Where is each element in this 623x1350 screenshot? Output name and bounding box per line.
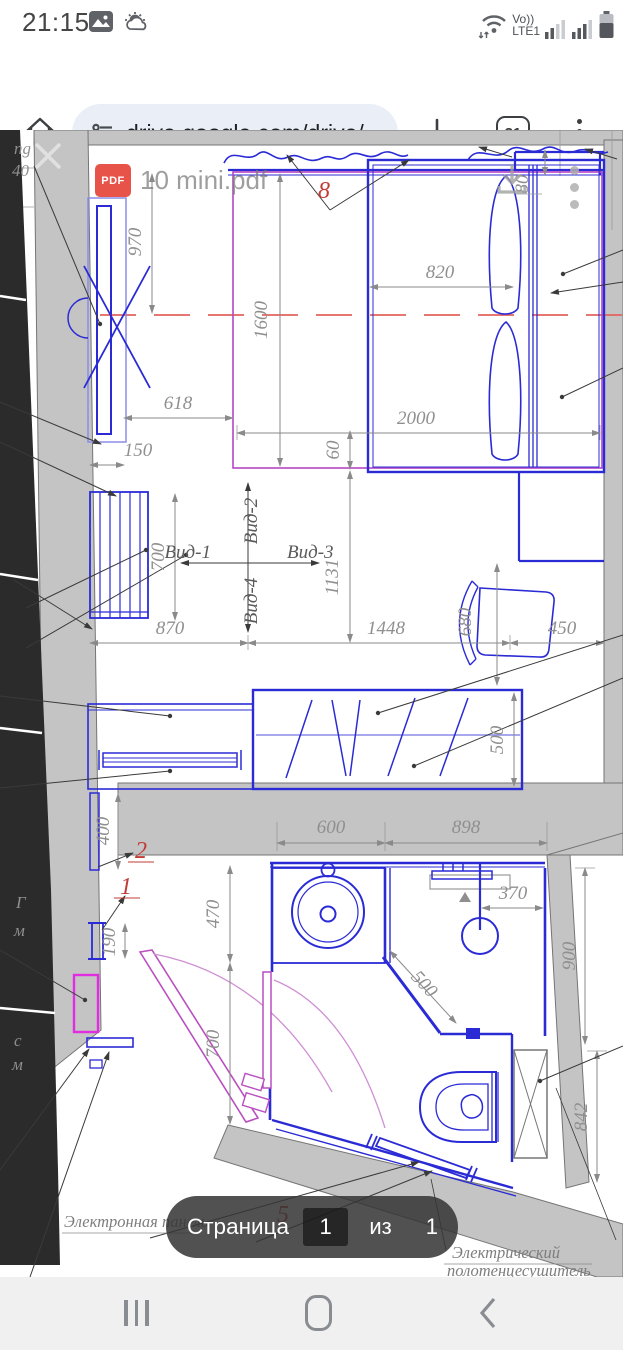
page-number-input[interactable]: 1 — [303, 1208, 348, 1246]
page-of-label: из — [369, 1214, 391, 1240]
phone-screen: 21:15 Vo)) — [0, 0, 623, 1350]
close-icon[interactable] — [30, 138, 66, 174]
svg-text:ng: ng — [14, 139, 31, 158]
dim-label: 870 — [156, 618, 185, 639]
page-indicator: Страница 1 из 1 — [166, 1196, 458, 1258]
svg-text:с: с — [14, 1031, 22, 1050]
wifi-icon — [478, 9, 508, 40]
dim-label: 680 — [455, 607, 476, 636]
dim-label: 400 — [93, 816, 114, 845]
callout: 2 — [135, 838, 147, 864]
dim-label: 600 — [317, 817, 346, 838]
floor-plan-drawing[interactable]: .dt{font:italic 19px "Liberation Serif",… — [0, 130, 623, 1277]
page-total: 1 — [426, 1214, 438, 1240]
dim-label: 820 — [426, 262, 455, 283]
svg-text:м: м — [13, 921, 25, 940]
callout: 1 — [120, 874, 132, 900]
annotation: Электрический — [452, 1243, 561, 1262]
dim-label: 470 — [203, 899, 224, 928]
svg-text:40: 40 — [12, 161, 30, 180]
dim-label: 60 — [323, 440, 344, 460]
status-icons: Vo)) LTE1 — [478, 4, 615, 40]
browser-toolbar: drive.google.com/drive/ 31 — [0, 45, 623, 130]
furniture — [68, 147, 608, 1068]
dim-label: 700 — [203, 1029, 224, 1058]
view-labels: Вид-1 Вид-3 Вид-2 Вид-4 — [164, 497, 333, 624]
view-label: Вид-3 — [287, 542, 334, 563]
dim-label: 1448 — [367, 618, 406, 639]
status-bar: 21:15 Vo)) — [0, 0, 623, 45]
view-label: Вид-2 — [241, 497, 262, 544]
clock: 21:15 — [22, 7, 90, 38]
page-indicator-label: Страница — [187, 1214, 289, 1240]
dim-label: 618 — [164, 393, 193, 414]
svg-text:Г: Г — [15, 893, 27, 912]
svg-text:м: м — [11, 1055, 23, 1074]
dim-label: 1131 — [322, 559, 343, 596]
dim-label: 2000 — [397, 408, 436, 429]
dim-label: 150 — [124, 440, 153, 461]
recents-button[interactable] — [124, 1300, 149, 1326]
battery-icon — [598, 10, 615, 40]
dim-label: 970 — [125, 227, 146, 256]
dim-label: 190 — [99, 927, 120, 956]
signal-bars-sim2-icon — [571, 12, 594, 40]
dim-label: 842 — [571, 1102, 592, 1131]
pdf-menu-icon[interactable] — [570, 166, 579, 209]
pdf-page[interactable]: .dt{font:italic 19px "Liberation Serif",… — [0, 130, 623, 1277]
view-label: Вид-1 — [164, 542, 211, 563]
annotation: полотенцесушитель — [447, 1261, 591, 1277]
dim-label: 450 — [548, 618, 577, 639]
gallery-notification-icon — [88, 10, 114, 33]
weather-notification-icon — [122, 10, 152, 35]
dim-label: 500 — [487, 725, 508, 754]
dim-label: 1600 — [251, 301, 272, 340]
dim-label: 900 — [559, 941, 580, 970]
back-button[interactable] — [478, 1297, 498, 1329]
view-label: Вид-4 — [241, 577, 262, 624]
signal-bars-sim1-icon — [544, 12, 567, 40]
dim-label: 370 — [498, 883, 528, 904]
dim-label: 898 — [452, 817, 481, 838]
volte-label: Vo)) LTE1 — [512, 13, 540, 37]
callout: 8 — [318, 178, 330, 204]
home-nav-button[interactable] — [305, 1295, 332, 1331]
android-nav-bar — [0, 1277, 623, 1350]
download-icon[interactable] — [492, 158, 532, 200]
